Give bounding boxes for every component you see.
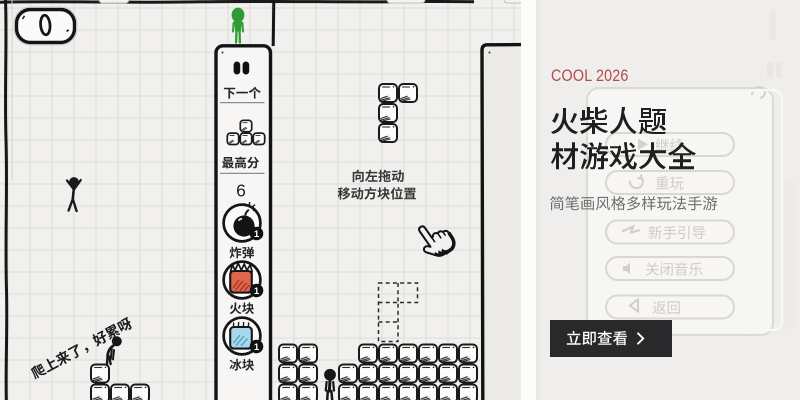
svg-text:COOL 2026: COOL 2026 xyxy=(551,67,629,85)
svg-text:1: 1 xyxy=(254,342,260,353)
svg-text:1: 1 xyxy=(254,229,260,240)
svg-text:1: 1 xyxy=(254,286,260,297)
svg-text:6: 6 xyxy=(236,181,246,201)
